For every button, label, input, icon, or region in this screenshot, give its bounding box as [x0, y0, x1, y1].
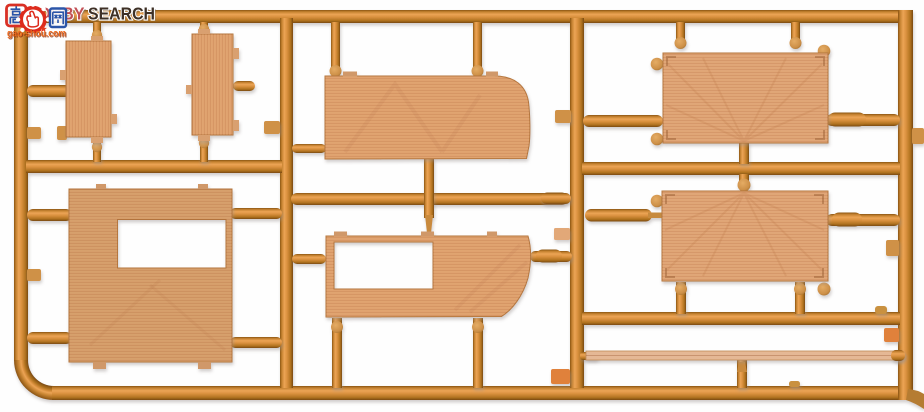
svg-text:gao-shou.com: gao-shou.com — [7, 29, 66, 40]
svg-text:SEARCH: SEARCH — [88, 4, 155, 24]
